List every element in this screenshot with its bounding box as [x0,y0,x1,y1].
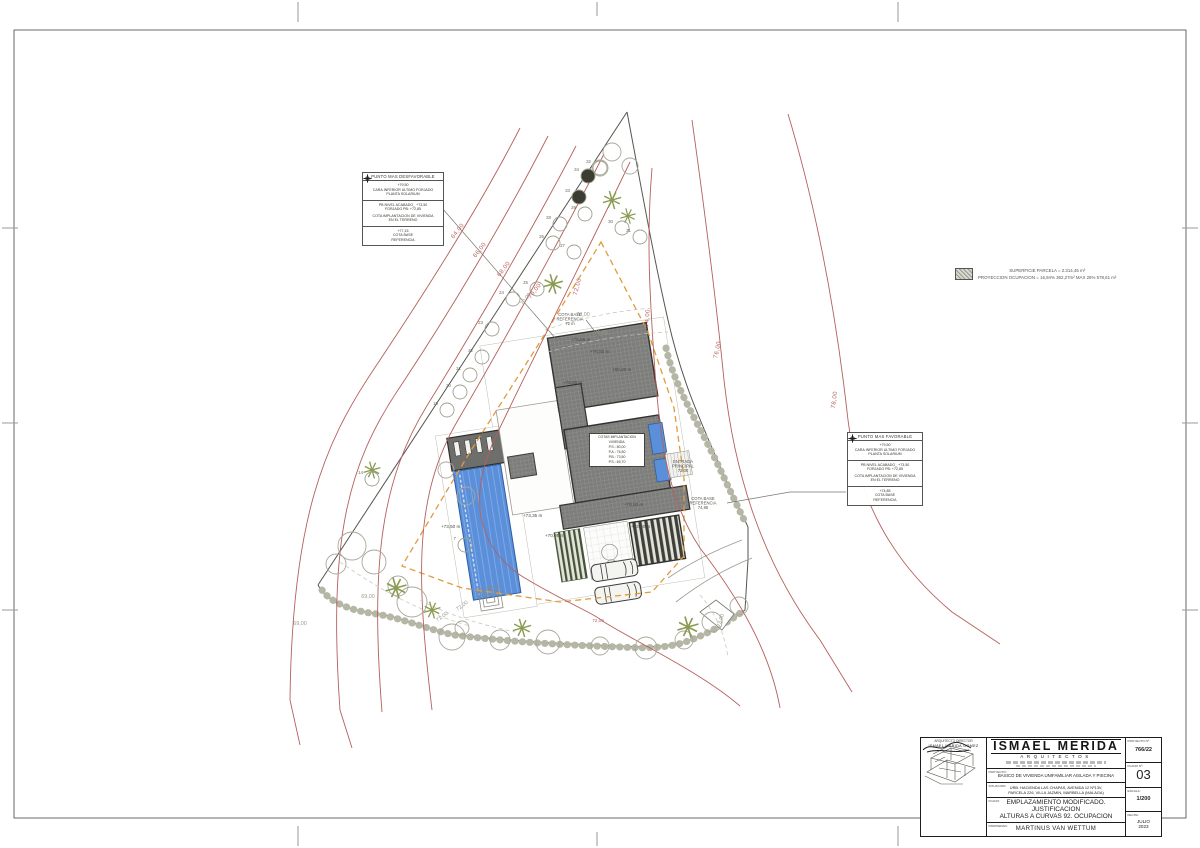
plan-label: 32 [586,159,591,164]
field-value: BASICO DE VIVIENDA UNIFAMILIAR AISLADA Y… [998,773,1114,778]
ann-line: EN EL TERRENO [849,478,921,482]
plan-label: +73,35 m [523,513,542,518]
field-value: MARTINUS VAN WETTUM [1016,826,1096,832]
plan-label: 66,00 [472,242,488,260]
drawing-sheet: 19202122232425262728293031323334147 64,0… [0,0,1200,848]
plan-label: 30 [608,219,613,224]
meta-label: FECHA: [1128,813,1139,817]
plan-label: 24 [499,290,504,295]
plan-label: 69,00 [293,621,307,627]
plan-label: 29 [571,205,576,210]
ann-line: FORJADO PB: +72,85 [849,467,921,471]
ann-line: PLANTA SOLARIUM [364,192,442,196]
plan-label: 22 [468,348,473,353]
plan-label: +75,65 m [571,337,590,342]
numbered-tree [572,190,586,204]
title-block: ARQUITECTO DIRECTOR ISMAEL MERIDA GOMEZ … [920,737,1162,837]
numbered-tree [365,472,379,486]
plan-label: 68,00 [496,261,512,279]
plan-label: 26 [539,234,544,239]
ann-line: EN EL TERRENO [364,218,442,222]
meta-fecha: FECHA: JULIO 2023 [1126,812,1161,836]
plan-label: 19 [433,401,438,406]
ann-line: REFERENCIA [849,498,921,502]
plan-label: +76,50 m [563,380,582,385]
field-value: PARCELA 226, VILLA JAZMIN, MARBELLA (MAL… [1008,790,1104,795]
plan-label: 23 [478,320,483,325]
meta-value: 1/200 [1137,796,1151,802]
ann-line: FORJADO PB: +72,85 [364,207,442,211]
plan-label: 28 [546,215,551,220]
firm-logo: ISMAEL MERIDA [991,739,1121,754]
title-block-main: ISMAEL MERIDA ARQUITECTOS PROYECTO: BASI… [987,738,1126,836]
annotation-box-favorable: PUNTO MAS FAVORABLE +79,50 CARA INFERIOR… [847,432,923,506]
plan-label: 14 [358,470,363,475]
numbered-tree [546,236,560,250]
plan-label: 21 [456,366,461,371]
numbered-tree [485,322,499,336]
plan-label: 33 [565,188,570,193]
firm-subtitle: ARQUITECTOS [987,754,1125,759]
field-value: EMPLAZAMIENTO MODIFICADO. JUSTIFICACION [1007,799,1106,813]
title-block-meta: PROYECTO Nº: 766/22 PLANO Nº: 03 ESCALA:… [1126,738,1161,836]
plan-label: +76,50 m [624,502,643,507]
meta-value: 03 [1136,767,1150,782]
plan-label: +70,95 m [545,533,564,538]
meta-label: PLANO Nº: [1128,764,1144,768]
ann-line: REFERENCIA [364,238,442,242]
field-propiedad: PROPIEDAD: MARTINUS VAN WETTUM [987,823,1125,836]
plan-label: 74,85 [698,505,709,510]
meta-value: 2023 [1138,824,1148,829]
plan-label: 72,00 [592,618,604,623]
field-proyecto: PROYECTO: BASICO DE VIVIENDA UNIFAMILIAR… [987,769,1125,783]
plan-label: +80,00 m [612,367,631,372]
plan-label: 31 [626,228,631,233]
firm-address-line [1006,761,1106,764]
north-arrow-icon [848,434,857,443]
plan-label: +76,50 m [590,349,609,354]
field-label: PROYECTO: [989,770,1007,774]
site-plan-svg: 19202122232425262728293031323334147 64,0… [0,0,1200,848]
numbered-tree [633,230,647,244]
cotas-info-box: COTAS IMPLANTACION VIVIENDA: P.S.: 80,00… [589,433,645,467]
numbered-tree [553,217,567,231]
plan-label: 72,00 [573,277,583,296]
plan-label: 25 [523,280,528,285]
field-value: ALTURAS A CURVAS 92. OCUPACION [1000,813,1113,820]
ann-line: PLANTA SOLARIUM [849,452,921,456]
numbered-tree [440,403,454,417]
plan-label: 72,00 [678,468,689,473]
field-situacion: SITUACION: URB. HACIENDA LAS CHAPAS, AVE… [987,783,1125,797]
numbered-tree [453,385,467,399]
plan-label: 34 [574,167,579,172]
plan-label: +73,50 m [441,524,460,529]
legend-line-1: SUPERFICIE PARCELA = 2.314,45 m² [978,267,1116,274]
meta-value: JULIO [1137,819,1150,824]
pergola-slats [629,515,685,566]
title-block-architect-cell: ARQUITECTO DIRECTOR ISMAEL MERIDA GOMEZ [921,738,987,836]
north-arrow-icon [363,174,372,183]
legend-line-2: PROYECCION OCUPACION = 16,94% 392,27m² M… [978,274,1116,281]
meta-label: PROYECTO Nº: [1128,739,1150,743]
plan-label: 69,00 [361,594,375,600]
annotation-title: PUNTO MAS DESFAVORABLE [363,173,443,181]
firm-header: ISMAEL MERIDA ARQUITECTOS [987,738,1125,769]
numbered-tree [567,245,581,259]
firm-contact-line [1016,765,1096,768]
plan-label: 78,00 [831,391,839,409]
plan-label: 20 [446,383,451,388]
numbered-tree [463,368,477,382]
plan-label: 27 [560,243,565,248]
roof-small [508,453,537,479]
numbered-tree [578,207,592,221]
plan-label: +73,50 m [631,524,650,529]
meta-proyecto-num: PROYECTO Nº: 766/22 [1126,738,1161,763]
info-level: P.S.: 69,70 [590,460,644,465]
numbered-tree [506,292,520,306]
field-label: PLANO: [989,799,1000,803]
numbered-tree [581,169,595,183]
annotation-title: PUNTO MAS FAVORABLE [848,433,922,441]
meta-escala: ESCALA: 1/200 [1126,788,1161,813]
signature [921,738,973,756]
meta-value: 766/22 [1135,747,1152,753]
field-label: SITUACION: [989,784,1007,788]
occupancy-swatch-icon [955,268,973,280]
annotation-box-unfavorable: PUNTO MAS DESFAVORABLE +79,50 CARA INFER… [362,172,444,246]
meta-plano-num: PLANO Nº: 03 [1126,763,1161,788]
numbered-tree [593,161,607,175]
plan-label: 72 m [565,321,575,326]
occupancy-legend: SUPERFICIE PARCELA = 2.314,45 m² PROYECC… [955,267,1116,281]
meta-label: ESCALA: [1128,789,1141,793]
plan-label: 71,00 [594,330,608,336]
field-plano: PLANO: EMPLAZAMIENTO MODIFICADO. JUSTIFI… [987,798,1125,823]
field-label: PROPIEDAD: [989,824,1008,828]
